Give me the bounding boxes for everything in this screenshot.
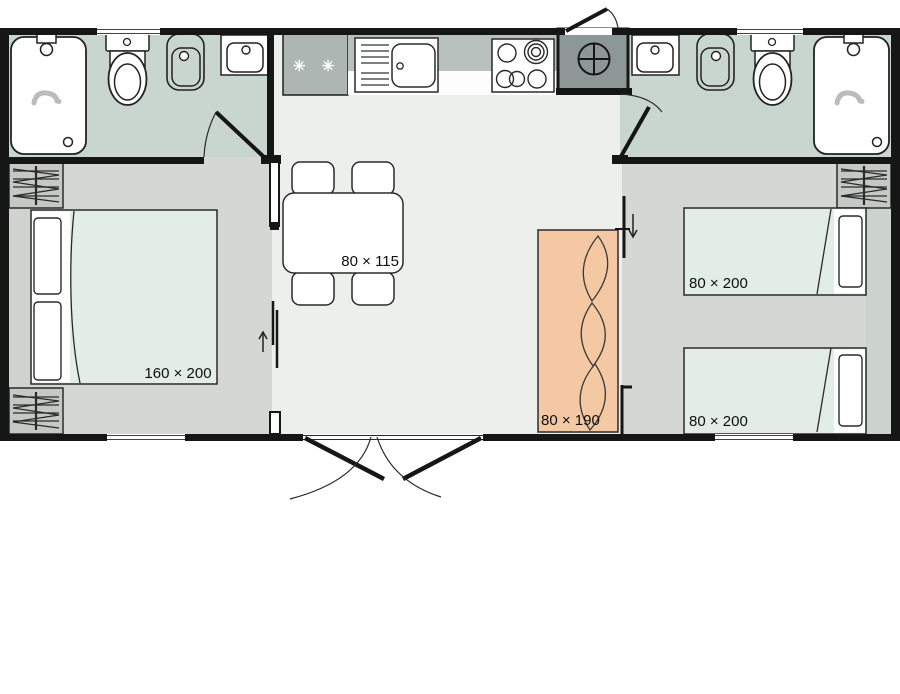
wall-top-c [612, 28, 737, 35]
wall-closet-bottom [556, 88, 632, 95]
door-leaf-left [305, 438, 384, 479]
sink-tap [397, 63, 403, 69]
single-bed-bottom: 80 × 200 [684, 348, 866, 434]
entrance-double-door [290, 434, 483, 499]
floor-plan-page: ✳ ✳ ✳ [0, 0, 900, 694]
chair [292, 162, 334, 195]
window-top-left [97, 28, 160, 35]
bathtub-drain [64, 138, 73, 147]
wall-bathroom-left-divider [267, 28, 274, 164]
bathtub-drain [873, 138, 882, 147]
utility-closet [558, 29, 628, 90]
toilet-right [751, 33, 794, 105]
counter-sink-left [221, 35, 268, 75]
wall-top-b [160, 28, 565, 35]
door-leaf-right [403, 438, 481, 479]
single-bed-bottom-dimensions: 80 × 200 [689, 413, 748, 430]
hob-unit [492, 39, 554, 92]
single-bed-top-dimensions: 80 × 200 [689, 275, 748, 292]
pillow [34, 302, 61, 380]
toilet-left [106, 33, 149, 105]
wall-top-a [0, 28, 97, 35]
wardrobe-left-bottom [9, 388, 63, 434]
wardrobe-left-top [9, 163, 63, 208]
door-swing-arc [607, 9, 618, 28]
chair [352, 162, 394, 195]
wardrobe-right-top [837, 163, 891, 208]
kitchen-sink-unit [355, 38, 438, 92]
pillow [839, 216, 862, 287]
counter-sink-right [632, 35, 679, 75]
wall-left [0, 28, 9, 441]
wall-top-d [803, 28, 900, 35]
bedroom-left-headboard-strip [9, 208, 31, 388]
chair [292, 272, 334, 305]
wall-bedroom-right-north [620, 157, 891, 164]
kitchen: ✳ ✳ ✳ [283, 29, 628, 95]
water-heater-icon [579, 44, 610, 75]
bedroom-right-shelf-strip [866, 208, 891, 434]
bedroom-left-doorway-floor [204, 157, 265, 164]
door-swing-arc [377, 437, 441, 497]
pillow [839, 355, 862, 426]
single-bed-top: 80 × 200 [684, 208, 866, 295]
wall-bottom-c [483, 434, 715, 441]
wall-right [891, 28, 900, 441]
wall-bottom-a [0, 434, 107, 441]
dining-table-dimensions: 80 × 115 [341, 253, 399, 270]
chair [352, 272, 394, 305]
master-bed: 160 × 200 [31, 210, 217, 384]
master-bed-dimensions: 160 × 200 [144, 365, 211, 382]
sofa: 80 × 190 [538, 230, 618, 432]
bathtub-left [11, 30, 86, 154]
window-top-right [737, 28, 803, 35]
bathtub-right [814, 30, 889, 154]
sofa-dimensions: 80 × 190 [541, 412, 600, 429]
wall-bottom-d [793, 434, 900, 441]
wall-bathroom-left-south [9, 157, 204, 164]
window-bottom-left [107, 434, 185, 441]
wall-bottom-b [185, 434, 303, 441]
wall-stub [270, 412, 280, 434]
window-bottom-right [715, 434, 793, 441]
pillow [34, 218, 61, 294]
floor-plan: ✳ ✳ ✳ [0, 0, 900, 694]
